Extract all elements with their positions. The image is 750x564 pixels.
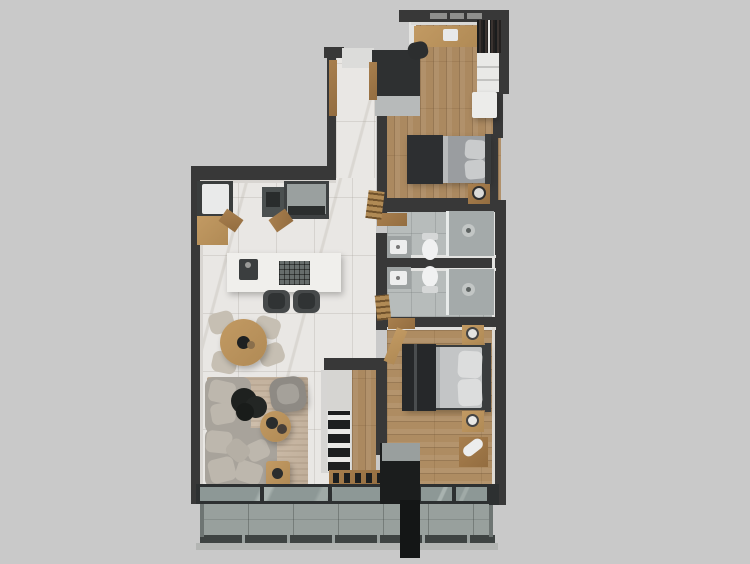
bed2-pillow-2	[457, 378, 482, 406]
shower1-drain	[466, 228, 471, 233]
towel-ladder	[365, 190, 384, 220]
sink1-drain	[396, 245, 400, 249]
coffee-machine	[266, 192, 280, 207]
wall-kitchen-top	[191, 166, 336, 180]
window-mullion-1	[447, 13, 450, 19]
balcony-floor	[203, 503, 493, 537]
sink2-drain	[396, 276, 400, 280]
island-grill	[279, 261, 310, 285]
bed2-headboard	[485, 343, 491, 412]
wall-closet-top	[324, 358, 387, 370]
shelf-white-bedroom1	[477, 53, 499, 92]
shelf-line-2	[477, 79, 499, 81]
wardrobe-front	[375, 96, 420, 116]
lamp-bedroom1	[472, 186, 486, 200]
island-faucet	[245, 262, 251, 268]
slider-mullion-1	[260, 487, 264, 501]
window-bedroom1	[430, 13, 482, 19]
stool-1-seat	[268, 293, 285, 309]
bed2-throw	[402, 344, 436, 411]
wall-closet-right	[376, 365, 387, 455]
sofa-plant-3	[236, 403, 254, 421]
slider-mullion-2	[328, 487, 332, 501]
toilet1-bowl	[422, 239, 438, 260]
slider-mullion-3	[452, 487, 456, 501]
table-plate	[247, 341, 255, 349]
bed1-pillow-2	[464, 159, 487, 180]
right-wall-face-bed2	[492, 327, 495, 485]
bg-notch	[381, 22, 409, 53]
bed1-sheet-fold	[443, 136, 448, 183]
entry-door-left	[329, 60, 337, 116]
balcony-edge-right	[489, 503, 493, 537]
toilet2-bowl	[422, 266, 438, 287]
shower2-glass	[446, 269, 449, 315]
stool-2-seat	[298, 293, 315, 309]
closet-clothes-divider	[488, 20, 490, 53]
entry-console-bedroom2	[388, 318, 415, 329]
tall-cabinet-top	[382, 443, 420, 461]
closet-shoes	[333, 473, 380, 483]
side-table-bowl	[272, 468, 283, 479]
shelf-line-1	[477, 66, 499, 68]
slider-glass-living	[200, 487, 393, 501]
wall-right-main	[495, 200, 506, 505]
bed2-pillow-1	[457, 350, 482, 378]
bed1-pillow-1	[464, 139, 486, 159]
balcony-apron	[196, 543, 498, 550]
shower2-drain	[466, 287, 471, 292]
window-mullion-2	[464, 13, 467, 19]
toilet2-tank	[422, 286, 438, 293]
balcony-edge-left	[200, 503, 204, 537]
shower1-glass	[446, 211, 449, 256]
lamp-bedroom2-north	[466, 327, 479, 340]
balcony-divider	[400, 500, 420, 558]
closet-shelves	[327, 410, 351, 472]
bed1-throw	[407, 135, 443, 184]
wall-bedroom1-left-lower	[377, 116, 387, 198]
dresser-white	[472, 92, 497, 118]
bed1-headboard	[485, 134, 491, 184]
lamp-bedroom2-south	[466, 414, 479, 427]
oven-band	[288, 206, 325, 215]
entry-door-right	[369, 62, 377, 100]
coffee-table-bowl	[277, 424, 287, 434]
closet-floor-wood	[352, 370, 376, 473]
towel-rack-2	[375, 294, 392, 320]
wall-corner-se	[489, 484, 499, 505]
bed2-throw-fold	[414, 344, 417, 411]
floorplan	[0, 0, 750, 564]
laptop	[443, 29, 458, 41]
